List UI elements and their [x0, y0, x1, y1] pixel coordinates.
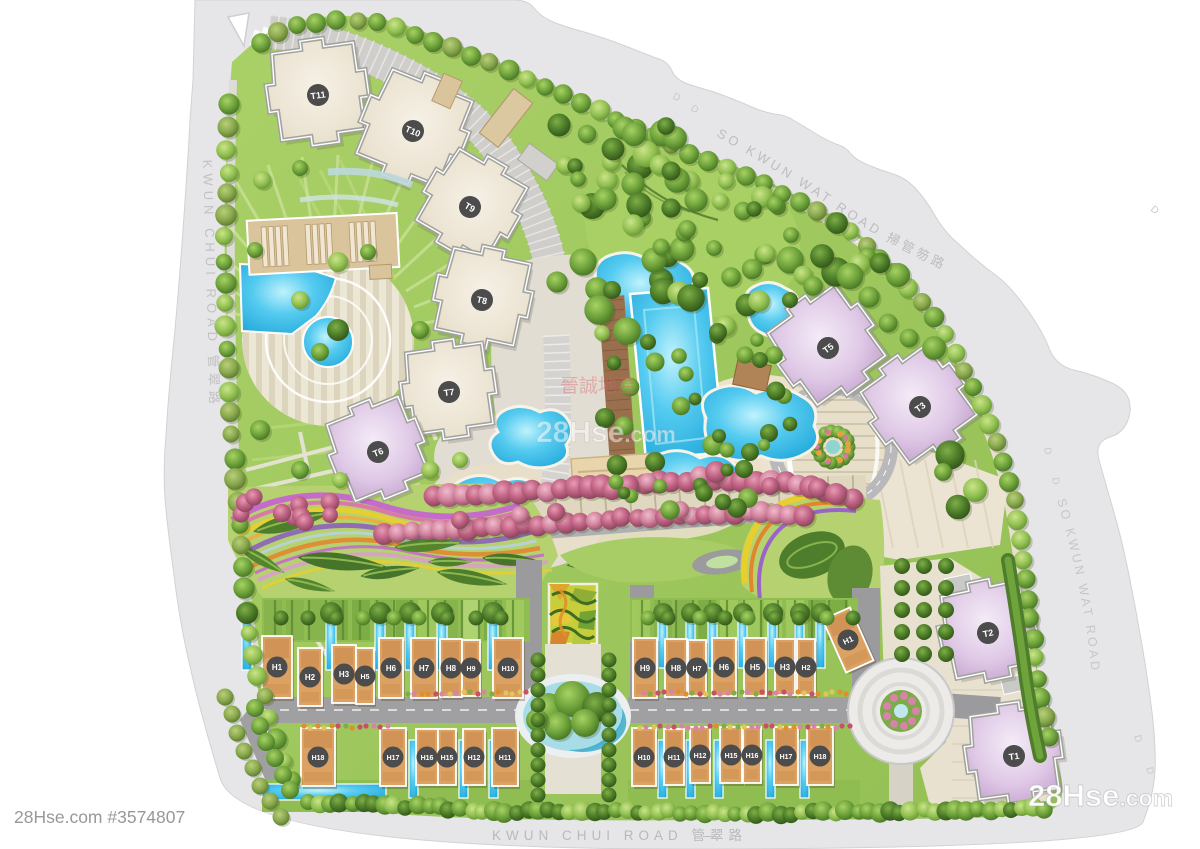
svg-text:H6: H6 [386, 664, 397, 673]
svg-text:H16: H16 [421, 755, 434, 762]
svg-text:H12: H12 [468, 755, 481, 762]
svg-text:H9: H9 [640, 664, 651, 673]
svg-text:H18: H18 [312, 755, 325, 762]
svg-text:H7: H7 [693, 666, 702, 673]
svg-text:H11: H11 [499, 755, 512, 762]
svg-text:H15: H15 [725, 753, 738, 760]
svg-text:H11: H11 [668, 755, 681, 762]
svg-text:H10: H10 [502, 666, 515, 673]
svg-text:T2: T2 [982, 627, 994, 639]
svg-text:H16: H16 [746, 753, 759, 760]
svg-text:H8: H8 [446, 664, 457, 673]
svg-text:H5: H5 [361, 674, 370, 681]
svg-text:T8: T8 [476, 294, 488, 306]
svg-text:H2: H2 [305, 673, 316, 682]
svg-text:H17: H17 [780, 754, 793, 761]
svg-text:T11: T11 [310, 89, 326, 101]
svg-text:晉誠地產: 晉誠地產 [560, 375, 636, 397]
svg-text:28Hse.com #3574807: 28Hse.com #3574807 [14, 807, 185, 827]
svg-text:H3: H3 [780, 663, 791, 672]
svg-text:H2: H2 [802, 665, 811, 672]
svg-text:H5: H5 [750, 663, 761, 672]
svg-text:H1: H1 [272, 663, 283, 672]
svg-text:H3: H3 [339, 670, 350, 679]
svg-text:T1: T1 [1008, 751, 1020, 762]
svg-text:T7: T7 [443, 387, 455, 398]
svg-text:H9: H9 [467, 666, 476, 673]
svg-text:H18: H18 [814, 754, 827, 761]
svg-text:H15: H15 [441, 755, 454, 762]
svg-text:H10: H10 [638, 755, 651, 762]
svg-text:H7: H7 [419, 664, 430, 673]
svg-text:H6: H6 [719, 663, 730, 672]
svg-text:H12: H12 [694, 753, 707, 760]
svg-text:H17: H17 [387, 755, 400, 762]
svg-text:—: — [703, 828, 717, 843]
svg-text:H8: H8 [671, 664, 682, 673]
